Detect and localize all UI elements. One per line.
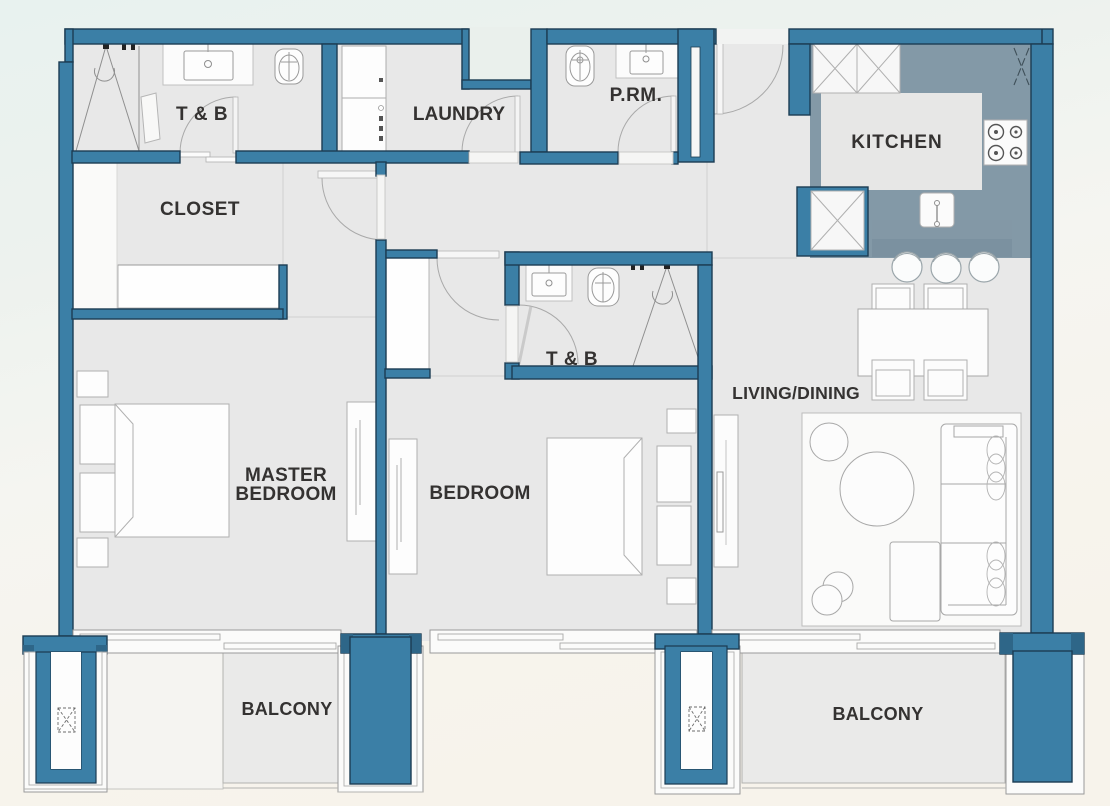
svg-text:MASTER: MASTER — [245, 465, 327, 486]
svg-text:T & B: T & B — [546, 349, 598, 370]
svg-text:P.RM.: P.RM. — [610, 85, 663, 106]
svg-text:LAUNDRY: LAUNDRY — [413, 104, 506, 125]
svg-text:BALCONY: BALCONY — [241, 699, 332, 719]
svg-text:T & B: T & B — [176, 104, 228, 125]
svg-text:BALCONY: BALCONY — [832, 704, 923, 724]
svg-text:KITCHEN: KITCHEN — [851, 132, 942, 153]
svg-text:BEDROOM: BEDROOM — [429, 483, 530, 504]
svg-text:CLOSET: CLOSET — [160, 199, 240, 220]
svg-text:LIVING/DINING: LIVING/DINING — [732, 383, 860, 403]
svg-text:BEDROOM: BEDROOM — [235, 484, 336, 505]
